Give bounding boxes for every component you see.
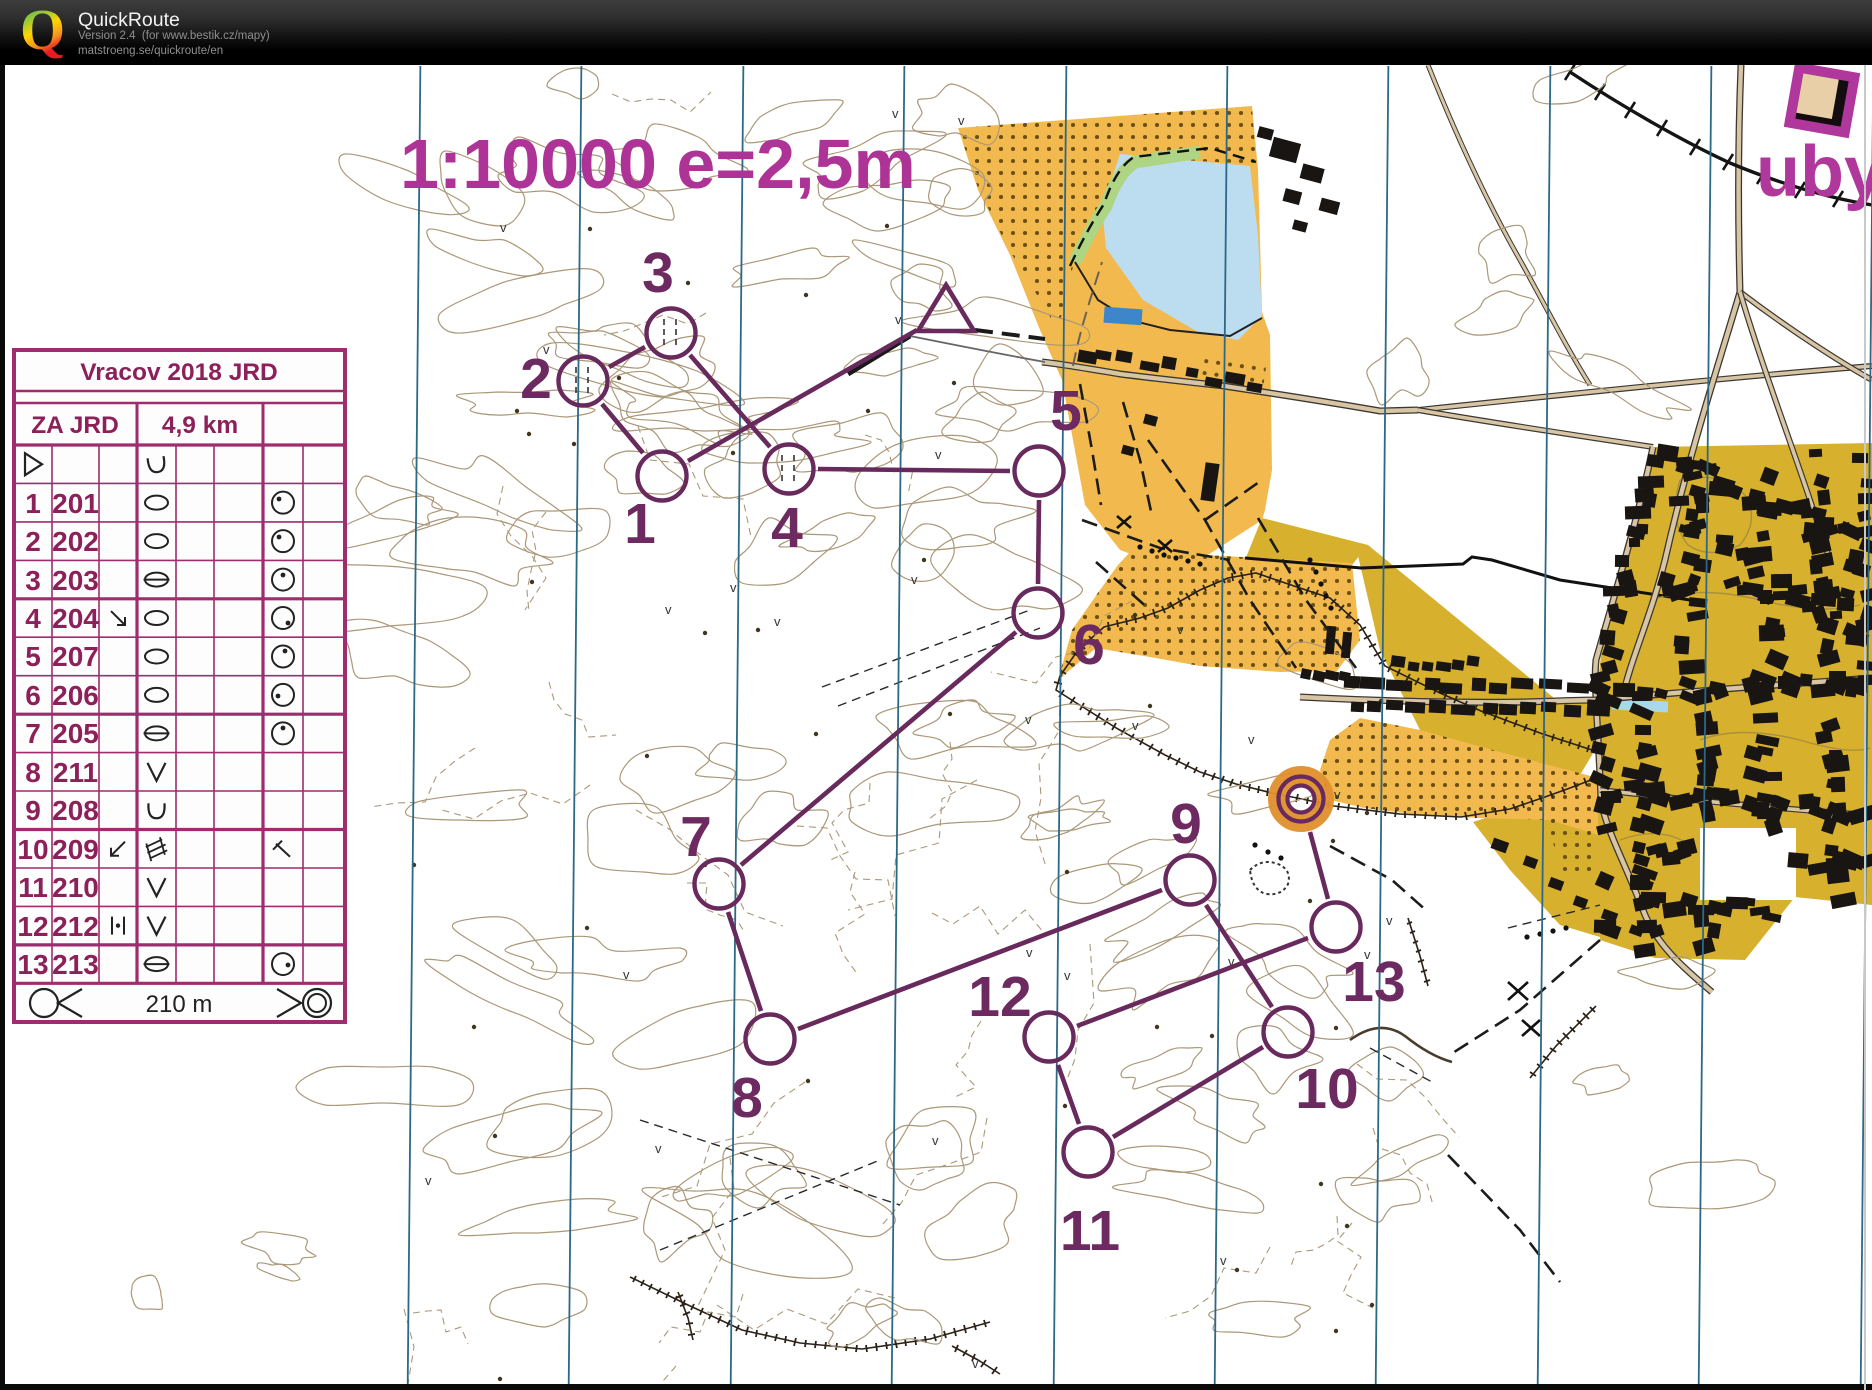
svg-text:210: 210 bbox=[52, 872, 99, 903]
svg-text:v: v bbox=[1177, 622, 1184, 637]
svg-text:12: 12 bbox=[17, 911, 48, 942]
svg-text:Q: Q bbox=[20, 0, 65, 62]
svg-text:v: v bbox=[665, 602, 672, 617]
svg-text:8: 8 bbox=[25, 757, 41, 788]
svg-text:6: 6 bbox=[25, 680, 41, 711]
svg-text:v: v bbox=[730, 580, 737, 595]
svg-text:206: 206 bbox=[52, 680, 99, 711]
svg-text:v: v bbox=[932, 1133, 939, 1148]
svg-text:5: 5 bbox=[1050, 379, 1082, 443]
svg-text:Vracov 2018 JRD: Vracov 2018 JRD bbox=[80, 359, 278, 386]
svg-text:8: 8 bbox=[731, 1066, 763, 1130]
svg-text:1: 1 bbox=[624, 492, 656, 556]
svg-text:2: 2 bbox=[25, 526, 41, 557]
svg-text:v: v bbox=[1386, 913, 1393, 928]
svg-text:207: 207 bbox=[52, 641, 99, 672]
svg-text:213: 213 bbox=[52, 949, 99, 980]
svg-text:9: 9 bbox=[25, 795, 41, 826]
svg-text:11: 11 bbox=[18, 872, 48, 903]
svg-text:204: 204 bbox=[52, 603, 99, 634]
svg-text:10: 10 bbox=[17, 834, 48, 865]
svg-text:203: 203 bbox=[52, 565, 99, 596]
svg-text:1: 1 bbox=[25, 488, 41, 519]
svg-text:v: v bbox=[892, 106, 899, 121]
svg-text:v: v bbox=[655, 1141, 662, 1156]
svg-text:201: 201 bbox=[52, 488, 99, 519]
svg-text:11: 11 bbox=[1060, 1199, 1120, 1263]
svg-text:210 m: 210 m bbox=[146, 991, 213, 1018]
svg-text:211: 211 bbox=[53, 757, 98, 788]
svg-text:v: v bbox=[1026, 945, 1033, 960]
svg-text:v: v bbox=[911, 572, 918, 587]
svg-text:v: v bbox=[500, 220, 507, 235]
svg-text:12: 12 bbox=[968, 965, 1031, 1029]
svg-text:4,9 km: 4,9 km bbox=[162, 412, 238, 439]
svg-text:v: v bbox=[1064, 968, 1071, 983]
svg-text:13: 13 bbox=[1342, 950, 1405, 1014]
svg-text:209: 209 bbox=[52, 834, 99, 865]
svg-text:v: v bbox=[1220, 1253, 1227, 1268]
svg-text:208: 208 bbox=[52, 795, 99, 826]
svg-text:3: 3 bbox=[25, 565, 41, 596]
svg-text:v: v bbox=[1025, 712, 1032, 727]
svg-text:v: v bbox=[1334, 787, 1341, 802]
svg-text:uby: uby bbox=[1756, 132, 1872, 212]
svg-text:v: v bbox=[958, 113, 965, 128]
svg-text:2: 2 bbox=[520, 347, 552, 411]
svg-text:3: 3 bbox=[642, 241, 674, 305]
svg-text:10: 10 bbox=[1295, 1057, 1358, 1121]
svg-text:v: v bbox=[774, 614, 781, 629]
svg-text:v: v bbox=[1132, 718, 1139, 733]
svg-text:202: 202 bbox=[52, 526, 99, 557]
svg-text:4: 4 bbox=[25, 603, 41, 634]
svg-text:v: v bbox=[425, 1173, 432, 1188]
svg-text:6: 6 bbox=[1073, 613, 1105, 677]
svg-text:9: 9 bbox=[1170, 792, 1202, 856]
svg-text:7: 7 bbox=[25, 718, 41, 749]
svg-text:205: 205 bbox=[52, 718, 99, 749]
svg-text:7: 7 bbox=[680, 805, 712, 869]
svg-text:v: v bbox=[935, 447, 942, 462]
svg-text:v: v bbox=[1248, 732, 1255, 747]
svg-text:v: v bbox=[895, 312, 902, 327]
svg-text:13: 13 bbox=[17, 949, 48, 980]
svg-text:ZA JRD: ZA JRD bbox=[31, 412, 119, 439]
svg-text:212: 212 bbox=[52, 911, 99, 942]
svg-text:4: 4 bbox=[771, 496, 803, 560]
svg-text:v: v bbox=[623, 967, 630, 982]
svg-text:v: v bbox=[972, 1356, 979, 1371]
svg-text:1:10000 e=2,5m: 1:10000 e=2,5m bbox=[400, 125, 916, 203]
svg-text:5: 5 bbox=[25, 641, 41, 672]
